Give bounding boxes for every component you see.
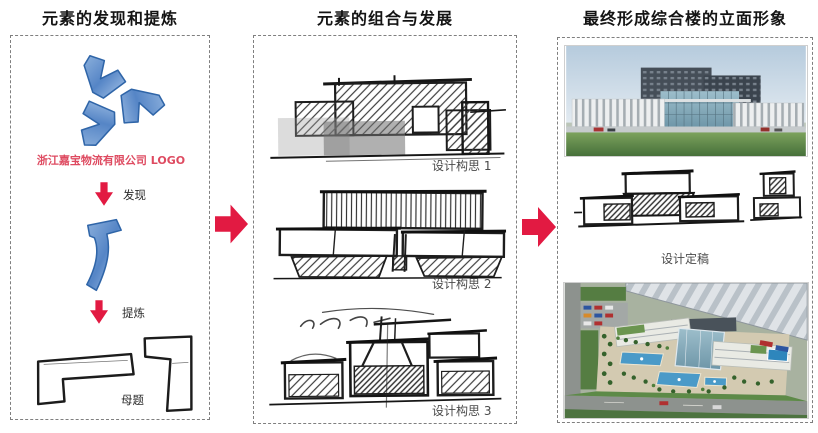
- step-label-refine: 提炼: [122, 305, 145, 321]
- step-label-discover: 发现: [123, 187, 146, 203]
- aerial-rendering-image: [563, 282, 809, 419]
- column-title-discovery: 元素的发现和提炼: [10, 5, 210, 29]
- right-arrow-icon: [215, 202, 248, 246]
- right-arrow-icon: [522, 204, 556, 250]
- concept-label-2: 设计构思 2: [432, 275, 491, 292]
- concept-label-3: 设计构思 3: [432, 402, 491, 419]
- logo-caption: 浙江嘉宝物流有限公司 LOGO: [11, 152, 211, 168]
- concept-label-1: 设计构思 1: [432, 157, 491, 174]
- column-title-final: 最终形成综合楼的立面形象: [557, 5, 813, 29]
- combination-panel: 设计构思 1 设计构思 2: [253, 35, 517, 424]
- concept-sketch-1: [266, 69, 508, 169]
- facade-rendering-image: [564, 45, 808, 157]
- design-process-diagram: 元素的发现和提炼 元素的组合与发展 最终形成综合楼的立面形象 浙江嘉宝物流有限公…: [0, 0, 818, 433]
- extracted-element-shape: [83, 215, 125, 295]
- column-title-combination: 元素的组合与发展: [253, 5, 517, 29]
- final-design-sketch: [568, 166, 804, 246]
- down-arrow-icon: [95, 182, 113, 206]
- final-panel: 设计定稿: [557, 37, 813, 423]
- logo-pinwheel-icon: [59, 50, 167, 150]
- motif-sketch: [29, 330, 197, 416]
- step-label-motif: 母题: [121, 392, 144, 408]
- final-design-label: 设计定稿: [558, 250, 812, 267]
- discovery-panel: 浙江嘉宝物流有限公司 LOGO 发现 提炼 母题: [10, 35, 210, 420]
- down-arrow-icon: [90, 300, 108, 324]
- concept-sketch-2: [266, 184, 508, 284]
- concept-sketch-3: [263, 304, 509, 414]
